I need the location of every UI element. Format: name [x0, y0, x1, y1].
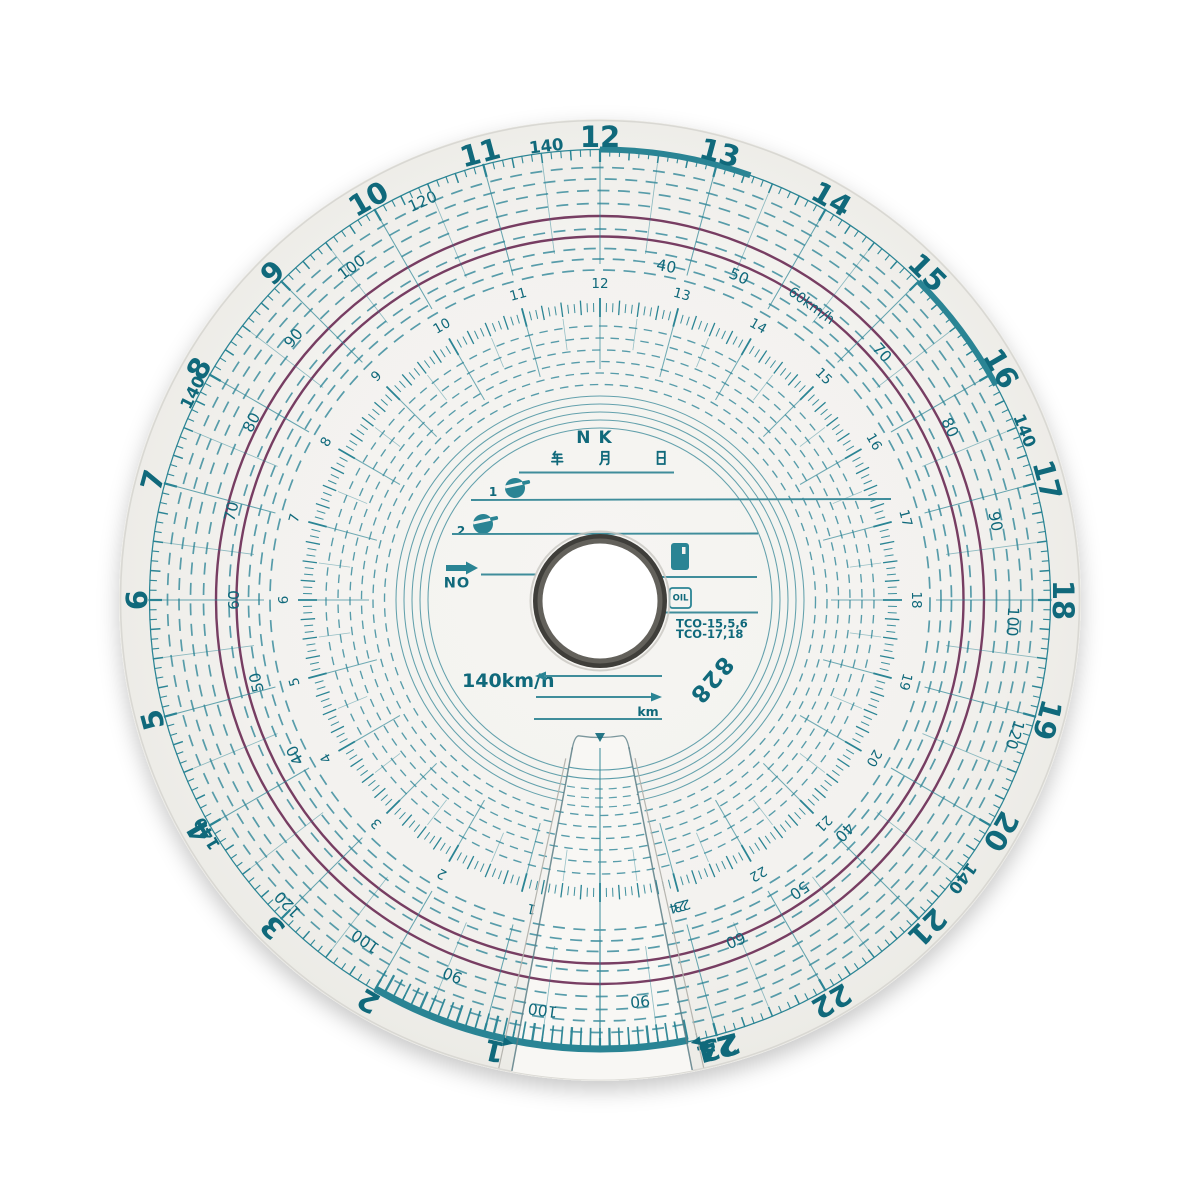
- km-label: km: [637, 704, 658, 719]
- oil-label: OIL: [673, 594, 689, 604]
- driver2-number: 2: [457, 524, 465, 538]
- inner-hour-label: 12: [591, 276, 608, 292]
- inner-hour-label: 18: [908, 591, 924, 608]
- speed-scale-label: 100: [1003, 606, 1023, 636]
- driver1-number: 1: [489, 485, 497, 499]
- tachograph-chart-photo: 1234567891011121314151617181920212223244…: [0, 0, 1200, 1200]
- model-line-2: TCO-17,18: [676, 627, 743, 641]
- max-speed-text: 140km/h: [462, 670, 555, 692]
- flap-speed-label: 90: [629, 991, 650, 1011]
- speed-scale-label: 40: [655, 256, 678, 278]
- maker-label: NK: [576, 428, 619, 448]
- tachograph-disc: 1234567891011121314151617181920212223244…: [0, 0, 1200, 1200]
- outer-hour-label: 12: [580, 120, 620, 154]
- speed-scale-label: 60: [225, 590, 243, 610]
- device-icon: [671, 543, 689, 570]
- outer-hour-label: 18: [1046, 580, 1080, 620]
- center-hole: [531, 532, 670, 671]
- no-label: NO: [444, 576, 470, 592]
- outer-hour-label: 6: [120, 590, 154, 610]
- speed-scale-label: 90: [985, 510, 1007, 533]
- max-speed-label: 140: [528, 135, 564, 158]
- inner-hour-label: 6: [276, 596, 292, 605]
